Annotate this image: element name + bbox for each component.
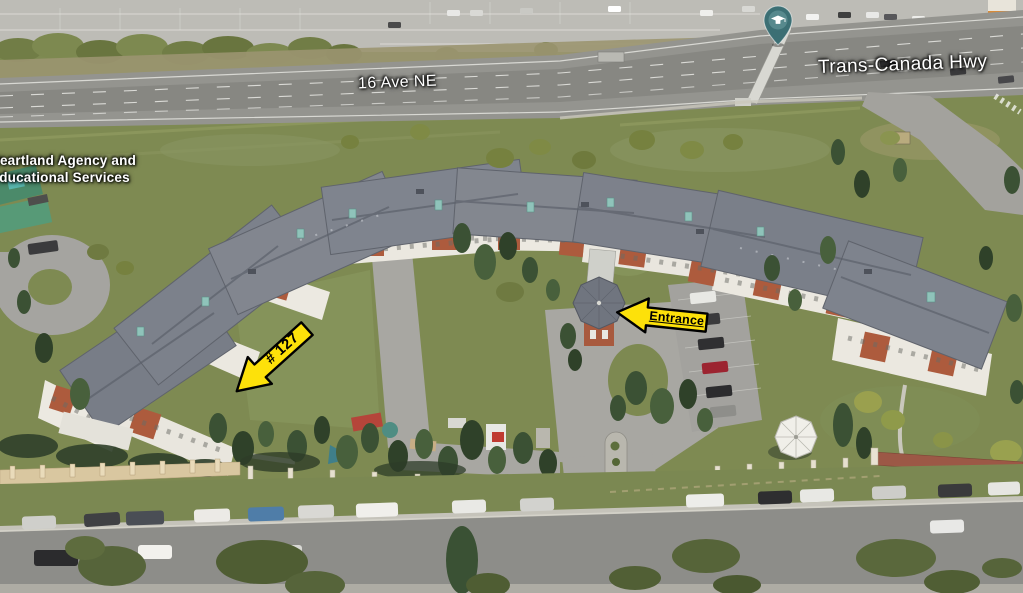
poi-label-line2: Educational Services [0, 169, 136, 186]
street [0, 464, 1023, 593]
street-label-16-ave-ne: 16 Ave NE [358, 73, 438, 94]
poi-label-line1: Heartland Agency and [0, 152, 136, 169]
aerial-photo [0, 0, 1023, 593]
poi-label-heartland: Heartland Agency and Educational Service… [0, 152, 136, 186]
school-poi-pin-icon[interactable] [763, 5, 793, 47]
graduation-cap-map-pin [763, 5, 793, 47]
aerial-map-view: 16 Ave NE Trans-Canada Hwy Heartland Age… [0, 0, 1023, 593]
